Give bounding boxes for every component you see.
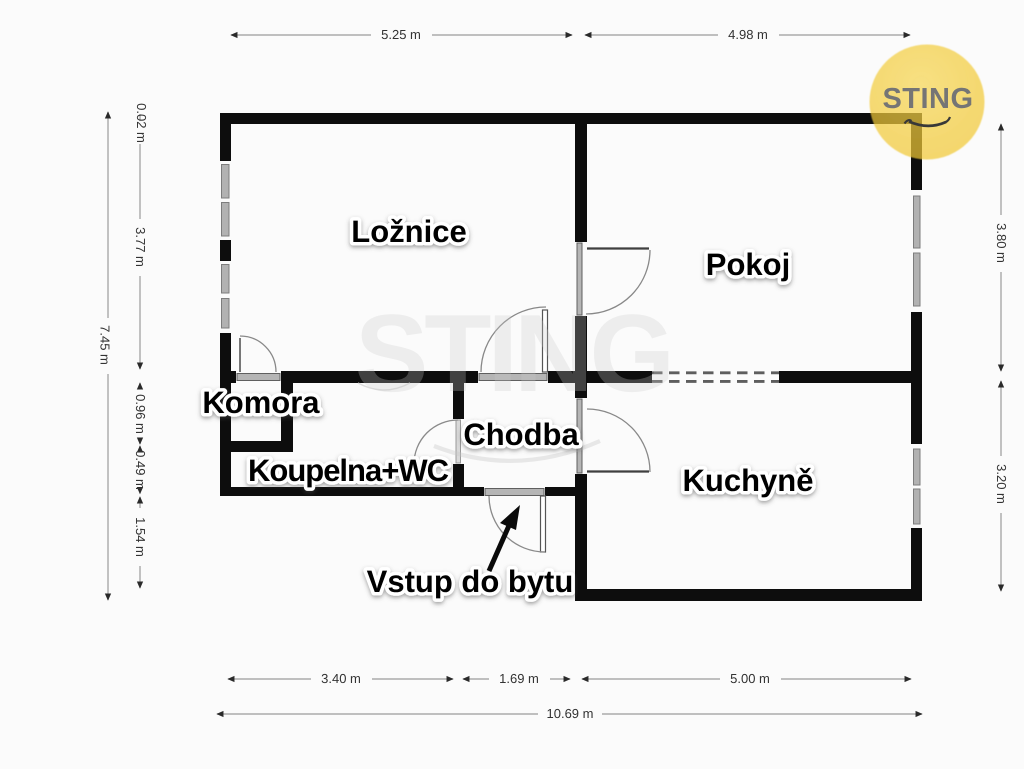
svg-text:5.00 m: 5.00 m [730, 671, 770, 686]
svg-text:3.77 m: 3.77 m [133, 227, 148, 267]
svg-text:4.98 m: 4.98 m [728, 27, 768, 42]
svg-text:3.20 m: 3.20 m [994, 464, 1009, 504]
svg-text:1.69 m: 1.69 m [499, 671, 539, 686]
svg-text:Chodba: Chodba [463, 417, 579, 452]
svg-text:Kuchyně: Kuchyně [683, 463, 814, 498]
svg-text:Koupelna+WC: Koupelna+WC [248, 453, 449, 488]
svg-text:STING: STING [882, 83, 973, 115]
svg-text:STING: STING [355, 292, 671, 415]
svg-text:3.80 m: 3.80 m [994, 223, 1009, 263]
svg-text:0.96 m: 0.96 m [133, 394, 148, 434]
svg-text:0.02 m: 0.02 m [134, 103, 149, 143]
svg-text:7.45 m: 7.45 m [98, 325, 113, 365]
svg-text:1.54 m: 1.54 m [133, 517, 148, 557]
svg-text:Pokoj: Pokoj [706, 247, 790, 282]
svg-text:Ložnice: Ložnice [351, 214, 466, 249]
svg-text:5.25 m: 5.25 m [381, 27, 421, 42]
svg-text:Vstup do bytu: Vstup do bytu [367, 564, 574, 599]
svg-text:10.69 m: 10.69 m [547, 706, 594, 721]
svg-text:3.40 m: 3.40 m [321, 671, 361, 686]
svg-text:0.49 m: 0.49 m [133, 450, 148, 490]
svg-text:Komora: Komora [202, 385, 320, 420]
